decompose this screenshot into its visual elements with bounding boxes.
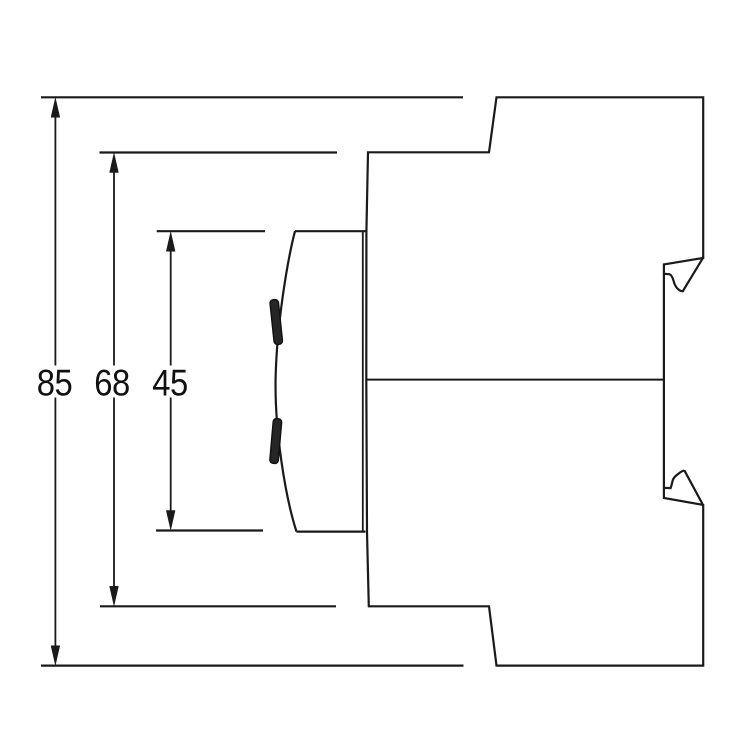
svg-text:85: 85 bbox=[37, 363, 73, 405]
svg-text:68: 68 bbox=[94, 363, 130, 405]
svg-text:45: 45 bbox=[152, 363, 188, 405]
